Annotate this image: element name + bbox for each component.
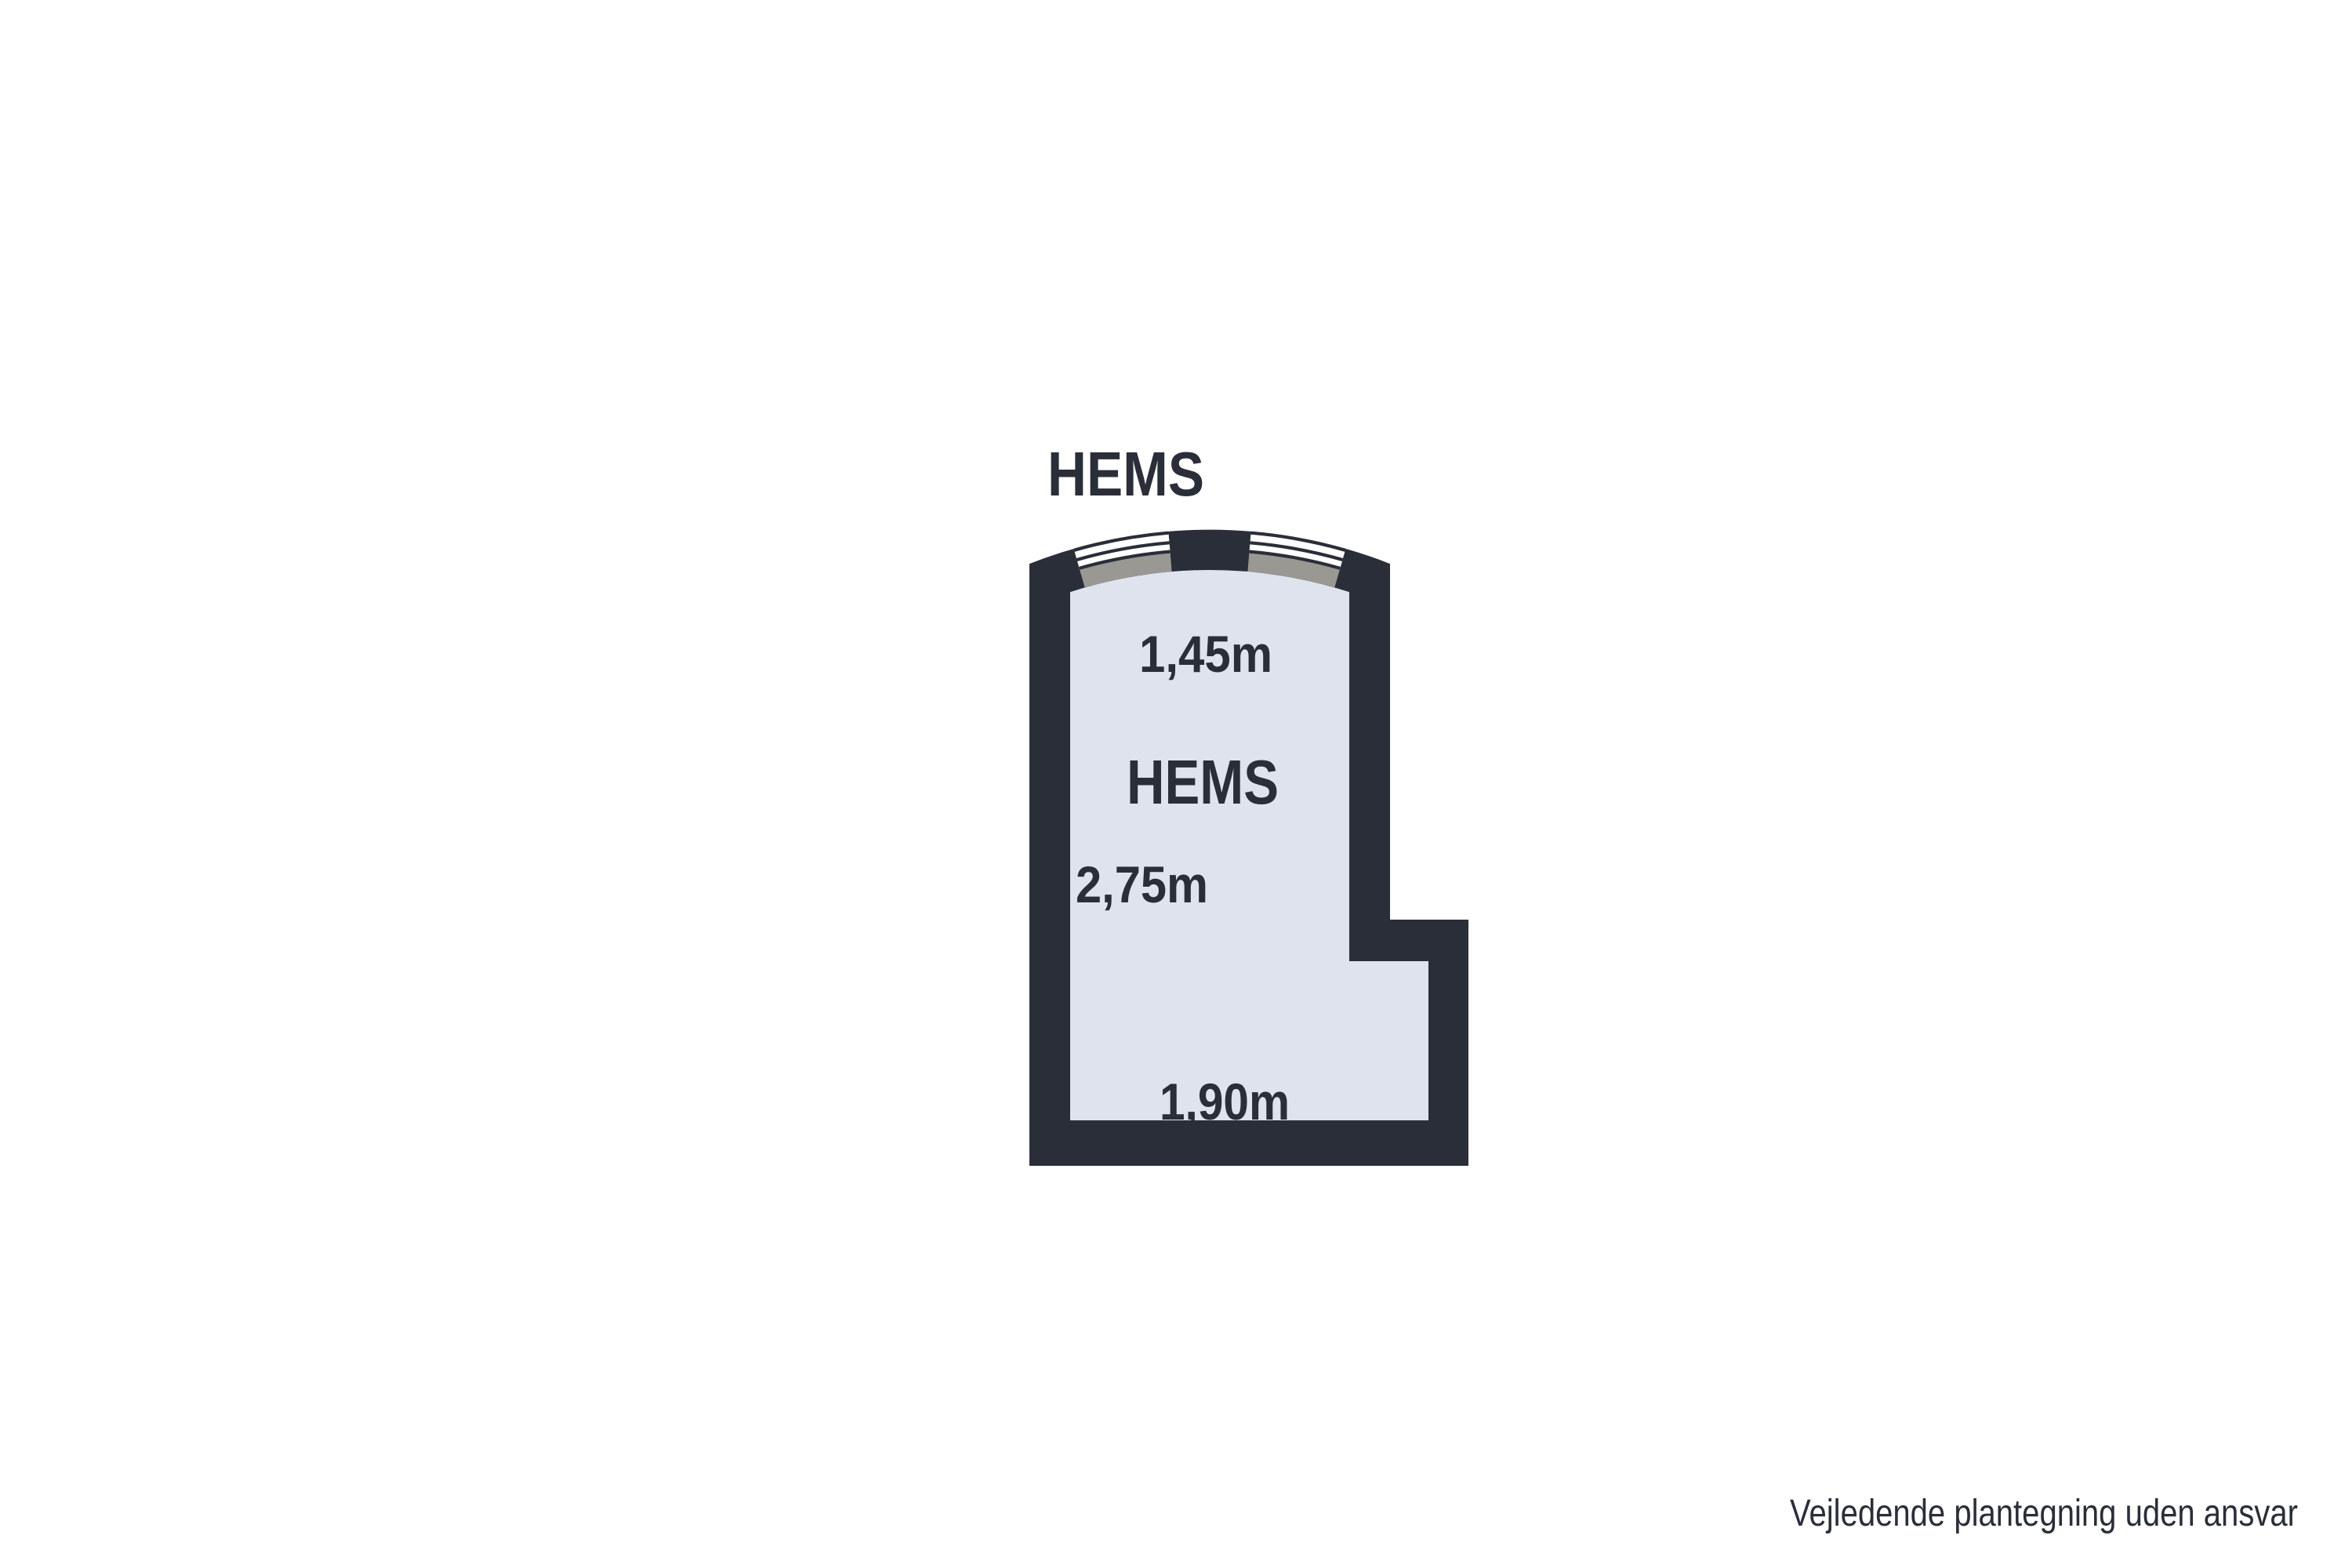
svg-text:HEMS: HEMS	[1127, 747, 1279, 817]
svg-text:1,90m: 1,90m	[1160, 1073, 1290, 1131]
svg-text:Vejledende plantegning uden an: Vejledende plantegning uden ansvar	[1790, 1493, 2298, 1534]
svg-text:HEMS: HEMS	[1047, 439, 1204, 509]
svg-text:2,75m: 2,75m	[1076, 855, 1208, 913]
svg-text:1,45m: 1,45m	[1139, 625, 1272, 683]
